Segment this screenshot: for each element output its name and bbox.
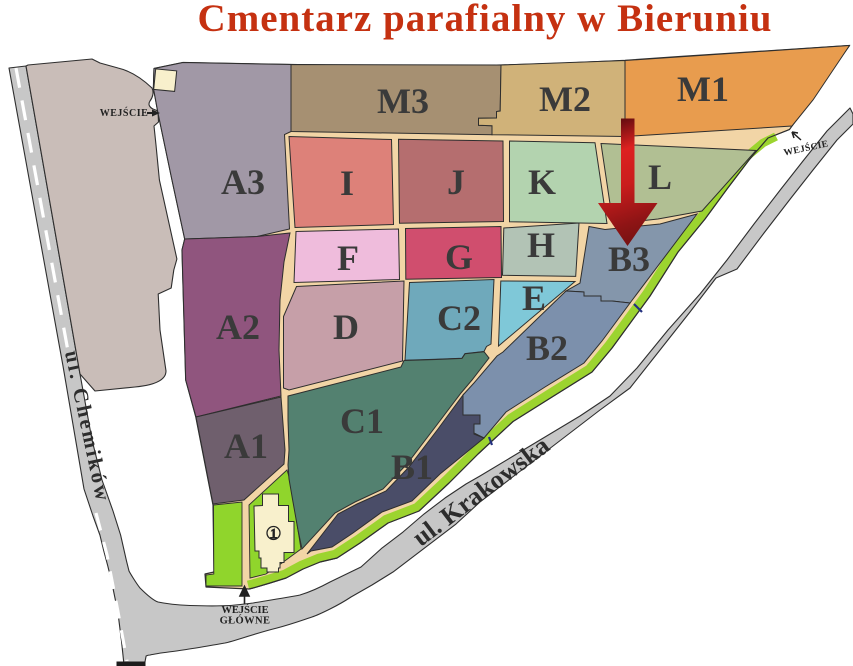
svg-text:WEJŚCIE: WEJŚCIE xyxy=(100,107,149,119)
svg-text:H: H xyxy=(527,225,555,265)
svg-text:L: L xyxy=(648,157,672,197)
svg-text:WEJŚCIE: WEJŚCIE xyxy=(221,604,268,616)
svg-text:K: K xyxy=(528,162,556,202)
svg-text:D: D xyxy=(333,307,359,347)
svg-text:Cmentarz parafialny w Bieruniu: Cmentarz parafialny w Bieruniu xyxy=(198,0,773,40)
svg-text:G: G xyxy=(445,237,473,277)
svg-text:E: E xyxy=(522,278,546,318)
svg-text:C1: C1 xyxy=(340,401,384,441)
svg-text:M1: M1 xyxy=(677,69,729,109)
svg-text:B3: B3 xyxy=(608,239,650,279)
svg-text:M2: M2 xyxy=(539,79,591,119)
svg-text:A2: A2 xyxy=(216,307,260,347)
svg-text:M3: M3 xyxy=(377,81,429,121)
svg-text:B1: B1 xyxy=(391,447,433,487)
svg-text:C2: C2 xyxy=(437,298,481,338)
svg-text:F: F xyxy=(337,238,359,278)
svg-text:B2: B2 xyxy=(526,328,568,368)
svg-text:GŁÓWNE: GŁÓWNE xyxy=(220,615,271,627)
svg-text:A1: A1 xyxy=(224,426,268,466)
svg-text:J: J xyxy=(447,162,465,202)
svg-text:I: I xyxy=(340,163,354,203)
svg-text:A3: A3 xyxy=(221,162,265,202)
